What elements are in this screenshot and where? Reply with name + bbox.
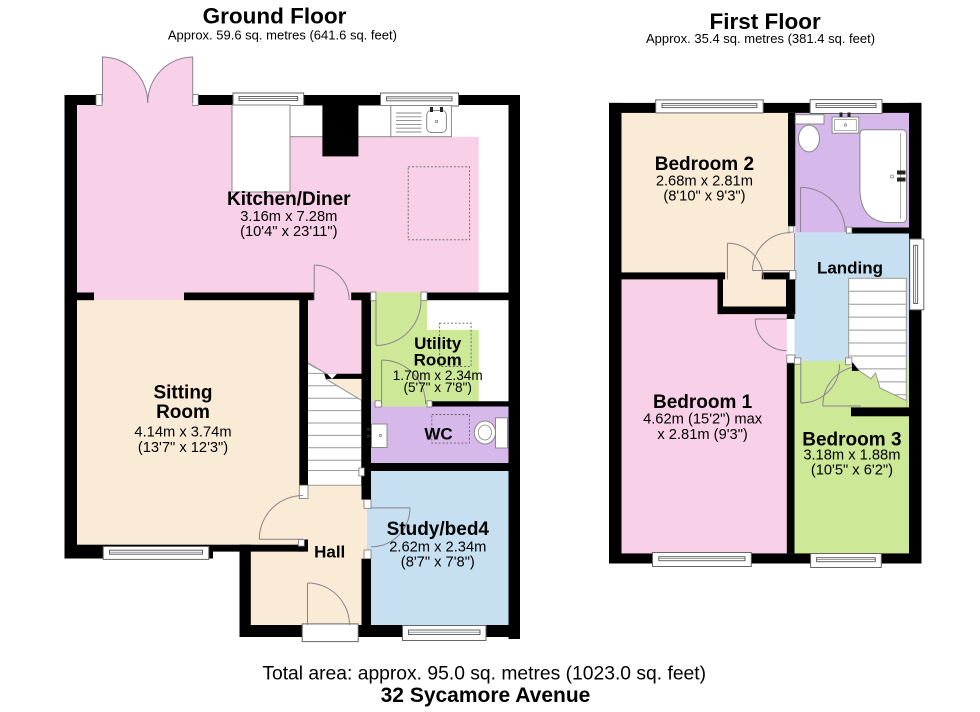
svg-text:Room: Room bbox=[156, 402, 210, 423]
svg-text:2.62m x 2.34m: 2.62m x 2.34m bbox=[389, 540, 486, 556]
svg-text:Total area: approx. 95.0 sq. m: Total area: approx. 95.0 sq. metres (102… bbox=[262, 664, 706, 685]
svg-text:3.18m x 1.88m: 3.18m x 1.88m bbox=[803, 448, 900, 464]
svg-text:(8'10" x 9'3"): (8'10" x 9'3") bbox=[663, 189, 745, 205]
svg-text:Sitting: Sitting bbox=[153, 383, 212, 404]
svg-text:4.14m x 3.74m: 4.14m x 3.74m bbox=[134, 425, 231, 441]
svg-text:Approx. 35.4 sq. metres (381.4: Approx. 35.4 sq. metres (381.4 sq. feet) bbox=[646, 31, 875, 46]
svg-text:4.62m (15'2") max: 4.62m (15'2") max bbox=[643, 412, 763, 428]
svg-text:Kitchen/Diner: Kitchen/Diner bbox=[227, 189, 351, 210]
svg-text:Bedroom 1: Bedroom 1 bbox=[653, 392, 753, 413]
svg-text:Ground Floor: Ground Floor bbox=[203, 4, 347, 29]
svg-text:(5'7" x 7'8"): (5'7" x 7'8") bbox=[403, 380, 472, 395]
svg-text:Landing: Landing bbox=[817, 259, 883, 278]
svg-text:x 2.81m (9'3"): x 2.81m (9'3") bbox=[657, 427, 747, 443]
svg-text:2.68m x 2.81m: 2.68m x 2.81m bbox=[656, 174, 753, 190]
svg-text:Bedroom 2: Bedroom 2 bbox=[655, 154, 754, 175]
svg-text:3.16m x 7.28m: 3.16m x 7.28m bbox=[240, 209, 337, 225]
svg-text:(10'5" x 6'2"): (10'5" x 6'2") bbox=[811, 463, 893, 479]
svg-text:Room: Room bbox=[414, 351, 462, 370]
svg-text:32 Sycamore Avenue: 32 Sycamore Avenue bbox=[381, 684, 591, 707]
svg-text:WC: WC bbox=[424, 424, 452, 443]
svg-text:Study/bed4: Study/bed4 bbox=[387, 519, 490, 540]
svg-text:Approx. 59.6 sq. metres (641.6: Approx. 59.6 sq. metres (641.6 sq. feet) bbox=[168, 27, 397, 42]
svg-text:(10'4" x 23'11"): (10'4" x 23'11") bbox=[240, 224, 337, 240]
svg-text:(13'7" x 12'3"): (13'7" x 12'3") bbox=[138, 440, 228, 456]
svg-text:Hall: Hall bbox=[314, 543, 345, 562]
svg-text:(8'7" x 7'8"): (8'7" x 7'8") bbox=[401, 555, 475, 571]
